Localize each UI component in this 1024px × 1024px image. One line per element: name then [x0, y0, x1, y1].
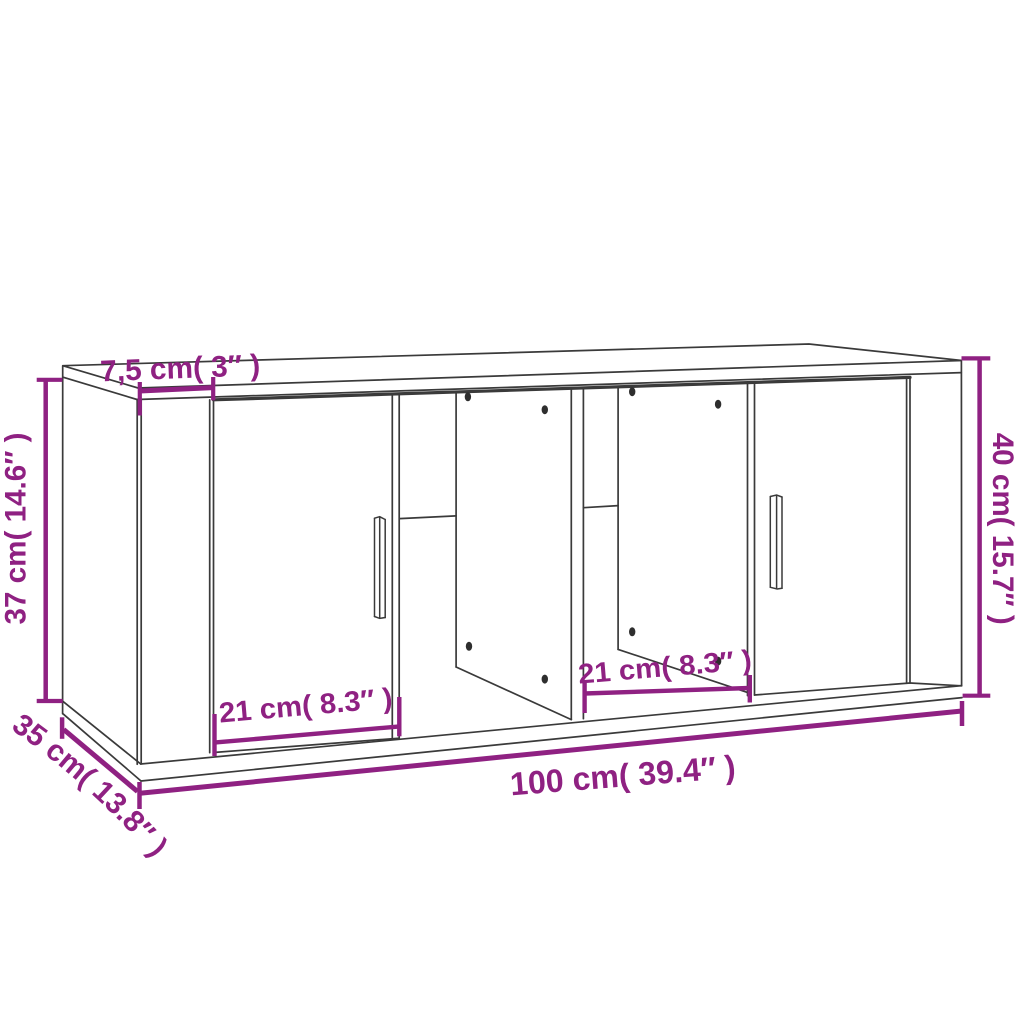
- svg-text:7,5 cm( 3″ ): 7,5 cm( 3″ ): [100, 349, 261, 388]
- svg-text:37 cm( 14.6″ ): 37 cm( 14.6″ ): [0, 433, 33, 625]
- svg-text:40 cm( 15.7″ ): 40 cm( 15.7″ ): [986, 433, 1019, 625]
